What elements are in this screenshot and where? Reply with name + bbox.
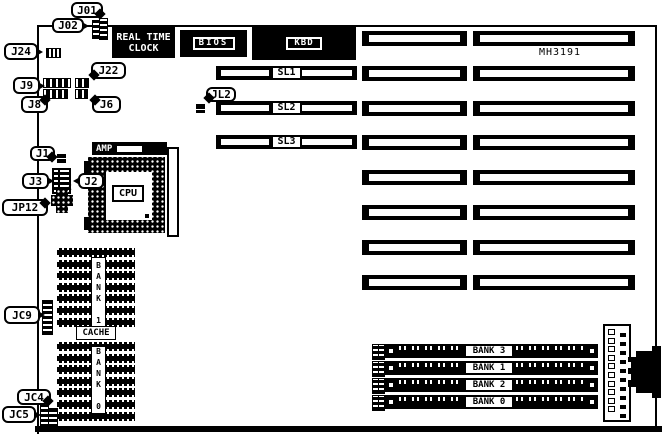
expansion-slot xyxy=(362,170,467,185)
sl3-label: SL3 xyxy=(271,135,302,149)
bank1-strip-label: BANK 1 xyxy=(91,257,106,331)
bank2-label: BANK 2 xyxy=(464,378,514,392)
expansion-slot xyxy=(362,135,467,150)
slot-key xyxy=(221,70,269,76)
expansion-slot xyxy=(362,275,467,290)
amp-label: AMP xyxy=(96,144,112,154)
simm-clip xyxy=(387,381,395,389)
power-pin-cell xyxy=(608,329,615,335)
real-time-clock-label: REAL TIME CLOCK xyxy=(116,32,170,54)
simm-clip xyxy=(588,364,596,372)
callout-j3: J3 xyxy=(22,173,49,189)
power-pin-cell xyxy=(608,398,615,404)
simm-left-connector xyxy=(378,378,385,394)
simm-clip xyxy=(387,398,395,406)
j01-j02-connector xyxy=(99,18,108,40)
bios-label: BIOS xyxy=(193,37,235,50)
expansion-slot xyxy=(362,31,467,46)
callout-jc5: JC5 xyxy=(2,406,36,423)
callout-j24: J24 xyxy=(4,43,38,60)
expansion-slot xyxy=(473,101,635,116)
cpu-side-bar xyxy=(167,147,179,237)
simm-clip xyxy=(588,381,596,389)
callout-j22: J22 xyxy=(91,62,126,79)
power-pin-cell xyxy=(608,355,615,361)
j1-connector xyxy=(57,154,66,163)
power-pin-cell xyxy=(608,389,615,395)
jp12-jumper xyxy=(51,195,73,206)
callout-j1: J1 xyxy=(30,146,55,161)
power-pin-cell xyxy=(608,346,615,352)
bank3-label: BANK 3 xyxy=(464,344,514,358)
jc4-jc5-connector xyxy=(48,408,58,428)
kbd-label: KBD xyxy=(286,37,322,50)
cpu-pin1-mark xyxy=(145,214,149,218)
simm-left-connector xyxy=(378,344,385,360)
callout-jc9: JC9 xyxy=(4,306,40,324)
simm-clip xyxy=(387,347,395,355)
keyboard-controller-box: KBD xyxy=(252,26,356,60)
power-pin-cell xyxy=(608,363,615,369)
expansion-slot xyxy=(473,170,635,185)
board-edge-bottom xyxy=(35,426,662,432)
j24-connector xyxy=(46,48,61,58)
simm-left-connector xyxy=(378,395,385,411)
expansion-slot xyxy=(362,240,467,255)
din-notch xyxy=(628,362,631,368)
power-pin-cell xyxy=(608,381,615,387)
callout-j02: J02 xyxy=(52,18,84,33)
slot-sl2: SL2 xyxy=(216,101,357,115)
callout-j01: J01 xyxy=(71,2,103,18)
expansion-slot xyxy=(473,31,635,46)
sl2-label: SL2 xyxy=(271,101,302,115)
callout-j8: J8 xyxy=(21,96,48,113)
slot-sl1: SL1 xyxy=(216,66,357,80)
power-pin-cell xyxy=(608,338,615,344)
expansion-slot xyxy=(362,205,467,220)
slot-key xyxy=(221,139,269,145)
amp-socket-bar: AMP xyxy=(92,142,167,155)
amp-slot-key xyxy=(117,146,142,152)
callout-j2: J2 xyxy=(78,173,104,189)
expansion-slot xyxy=(362,101,467,116)
expansion-slot xyxy=(473,205,635,220)
cpu-label: CPU xyxy=(112,185,144,202)
slot-key xyxy=(221,105,269,111)
callout-jp12: JP12 xyxy=(2,199,48,216)
simm-clip xyxy=(588,398,596,406)
dip-chip xyxy=(57,248,135,257)
callout-jc4: JC4 xyxy=(17,389,51,405)
simm-clip xyxy=(387,364,395,372)
expansion-slot xyxy=(473,135,635,150)
bank0-label: BANK 0 xyxy=(464,395,514,409)
simm-left-connector xyxy=(378,361,385,377)
jl2-connector xyxy=(196,104,205,113)
cpu-socket-tab xyxy=(84,217,89,230)
callout-j6: J6 xyxy=(92,96,121,113)
din-notch xyxy=(628,374,631,380)
slot-sl3: SL3 xyxy=(216,135,357,149)
j6-jumper-strip xyxy=(75,89,88,99)
board-model-text: MH3191 xyxy=(528,47,592,58)
sl1-label: SL1 xyxy=(271,66,302,80)
expansion-slot xyxy=(473,66,635,81)
cache-label: CACHE xyxy=(76,326,116,340)
power-pin-cell xyxy=(608,372,615,378)
power-pin-cell xyxy=(608,406,615,412)
power-connector xyxy=(603,324,631,422)
callout-j9: J9 xyxy=(13,77,40,94)
bank0-strip-label: BANK 0 xyxy=(91,346,106,414)
real-time-clock-box: REAL TIME CLOCK xyxy=(112,27,175,58)
callout-jl2: JL2 xyxy=(206,87,236,102)
expansion-slot xyxy=(473,275,635,290)
simm-clip xyxy=(588,347,596,355)
bank1-label: BANK 1 xyxy=(464,361,514,375)
expansion-slot xyxy=(362,66,467,81)
j22-jumper-strip xyxy=(75,78,89,88)
expansion-slot xyxy=(473,240,635,255)
bios-box: BIOS xyxy=(180,30,247,57)
keyboard-din-connector xyxy=(652,346,661,398)
motherboard-diagram: REAL TIME CLOCK BIOS KBD SL1 SL2 SL3 MH3… xyxy=(0,0,662,434)
